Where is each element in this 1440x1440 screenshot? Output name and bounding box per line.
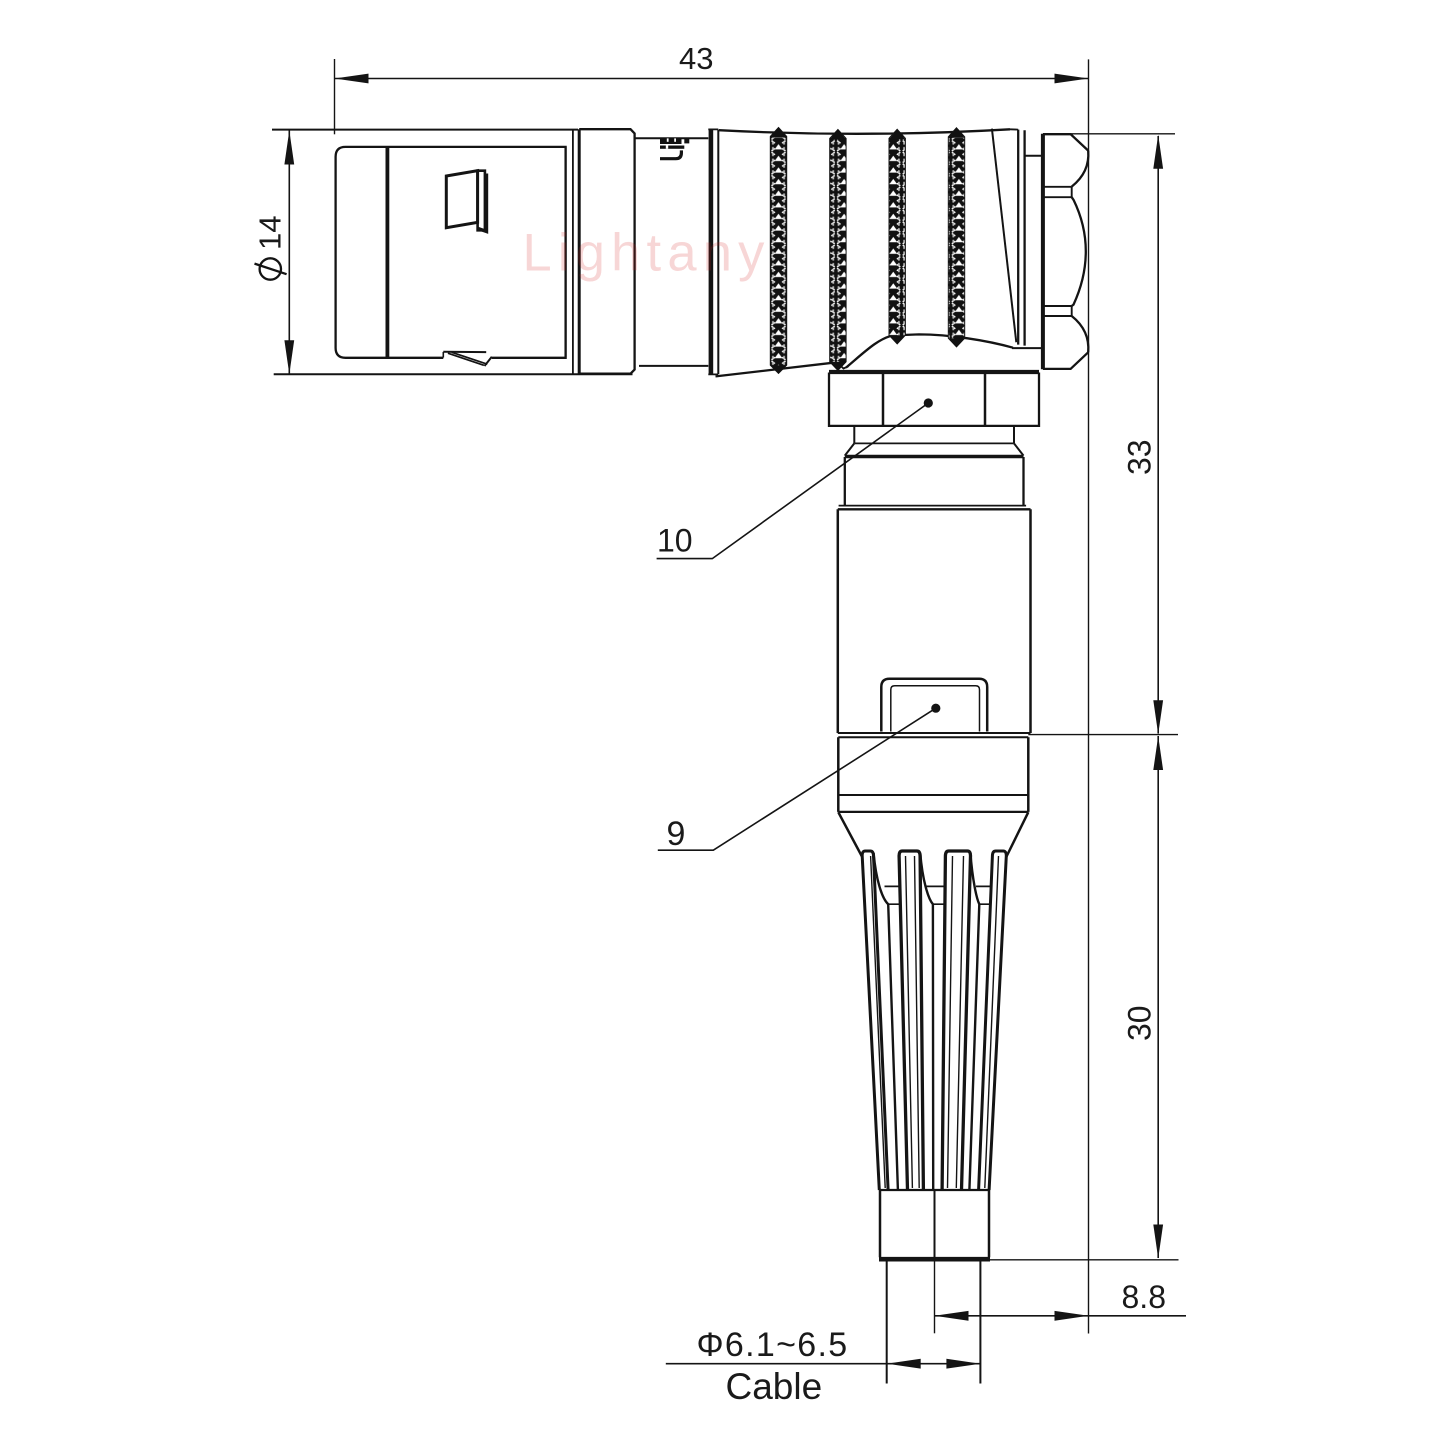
svg-text:43: 43 (679, 41, 713, 76)
svg-text:30: 30 (1122, 1005, 1158, 1041)
svg-text:Φ6.1~6.5: Φ6.1~6.5 (697, 1326, 849, 1364)
svg-text:Cable: Cable (726, 1366, 823, 1407)
svg-text:14: 14 (253, 216, 288, 250)
svg-text:33: 33 (1122, 439, 1158, 475)
svg-text:8.8: 8.8 (1122, 1279, 1166, 1315)
svg-text:9: 9 (667, 815, 686, 853)
svg-text:10: 10 (657, 523, 693, 559)
svg-text:Lightany: Lightany (523, 224, 771, 283)
